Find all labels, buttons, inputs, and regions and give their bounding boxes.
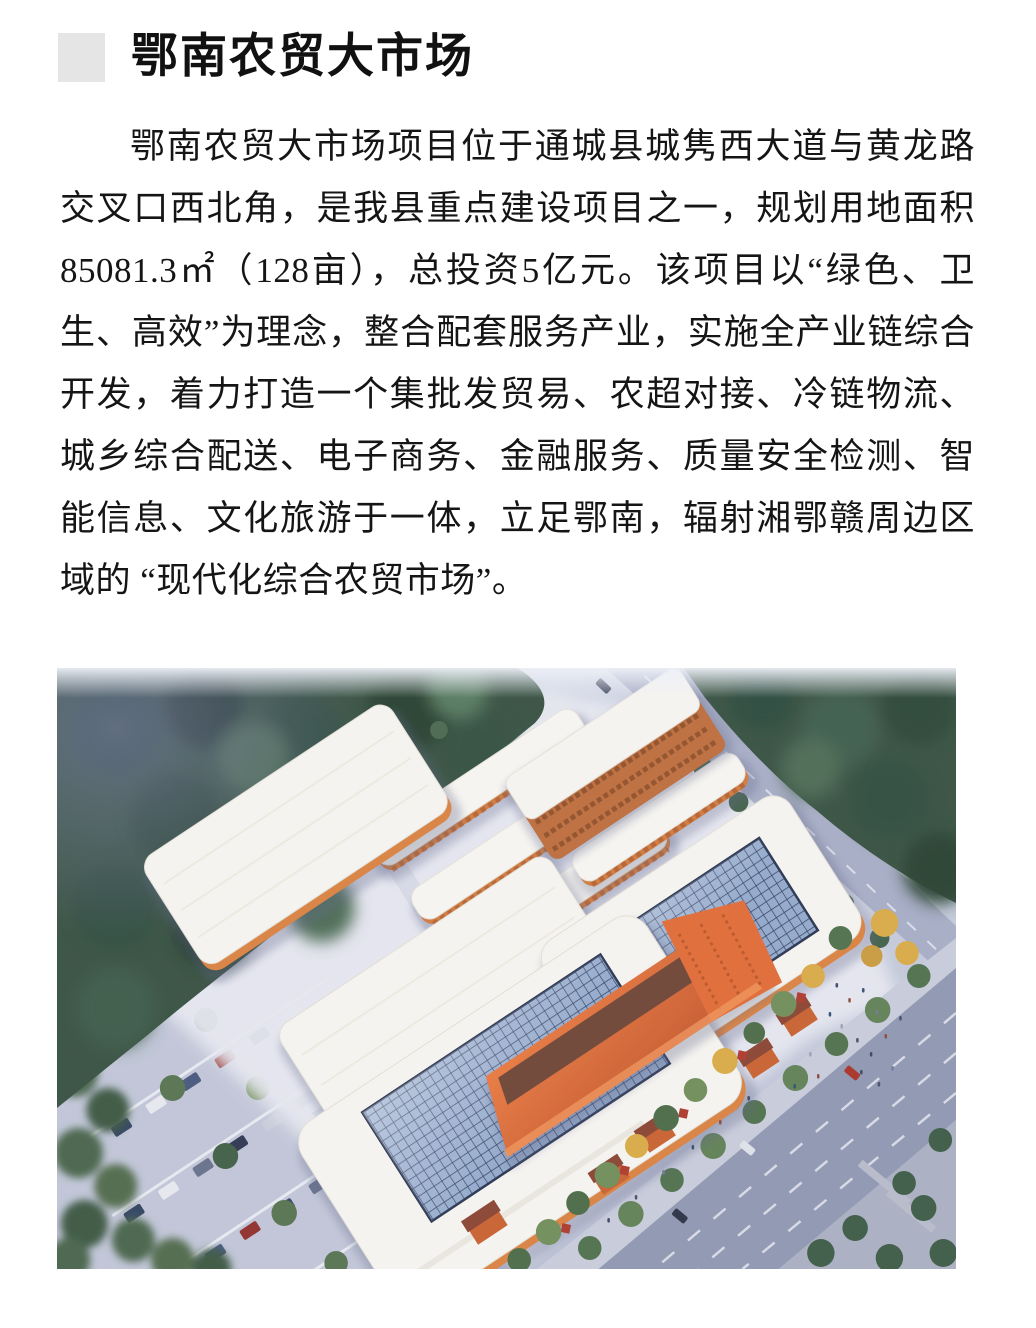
- article-page: 鄂南农贸大市场 鄂南农贸大市场项目位于通城县城隽西大道与黄龙路交叉口西北角，是我…: [0, 0, 1036, 1328]
- article-header: 鄂南农贸大市场: [0, 0, 1036, 82]
- page-title: 鄂南农贸大市场: [131, 33, 474, 82]
- title-square-marker: [58, 33, 105, 82]
- article-paragraph: 鄂南农贸大市场项目位于通城县城隽西大道与黄龙路交叉口西北角，是我县重点建设项目之…: [60, 116, 975, 612]
- aerial-rendering-image: [57, 668, 956, 1269]
- photo-wash: [57, 668, 956, 1269]
- aerial-rendering-figure: [57, 668, 956, 1269]
